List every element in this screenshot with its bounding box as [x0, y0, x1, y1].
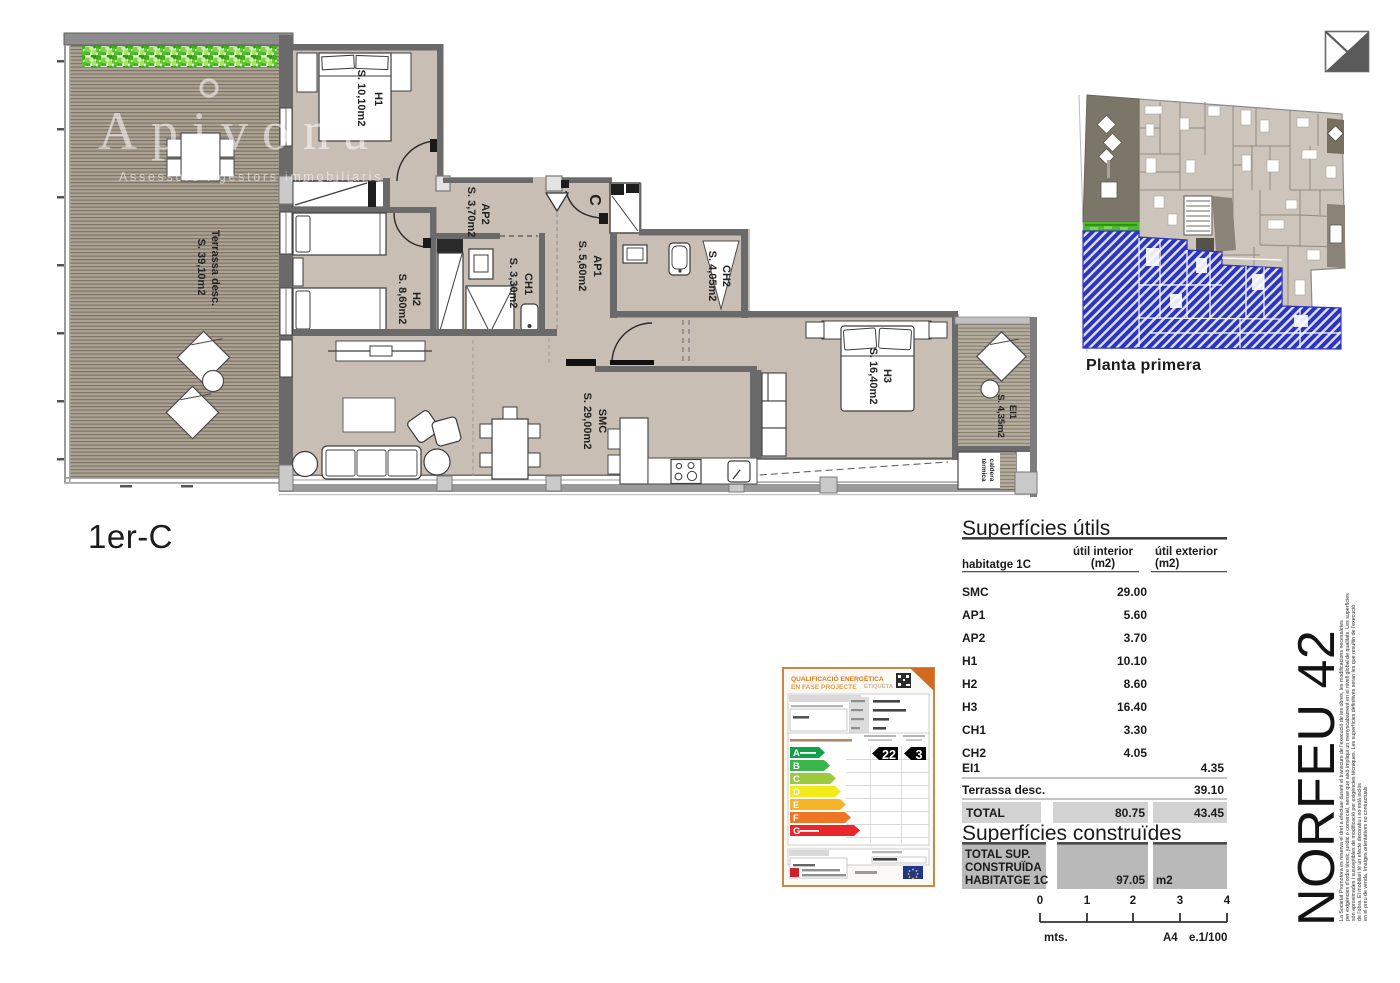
- svg-text:S. 8,60m2: S. 8,60m2: [396, 274, 408, 325]
- svg-text:CH2: CH2: [720, 265, 732, 287]
- svg-text:2: 2: [1130, 895, 1136, 907]
- svg-text:H2: H2: [410, 292, 422, 306]
- svg-text:39.10: 39.10: [1194, 783, 1224, 797]
- svg-text:H3: H3: [962, 700, 978, 714]
- svg-text:1er-C: 1er-C: [88, 518, 173, 555]
- svg-text:3: 3: [1177, 895, 1183, 907]
- svg-text:H2: H2: [962, 677, 978, 691]
- svg-text:mts.: mts.: [1044, 932, 1068, 944]
- svg-text:TOTAL: TOTAL: [966, 806, 1005, 820]
- svg-text:16.40: 16.40: [1117, 700, 1147, 714]
- svg-text:1: 1: [1084, 895, 1091, 907]
- svg-text:Superfícies construïdes: Superfícies construïdes: [962, 822, 1181, 845]
- svg-text:SMC: SMC: [596, 409, 608, 434]
- svg-text:4.05: 4.05: [1124, 746, 1148, 760]
- svg-text:S. 29,00m2: S. 29,00m2: [581, 393, 593, 450]
- svg-text:ETIQUETA: ETIQUETA: [864, 684, 894, 690]
- svg-text:Assessors i gestors immobiliar: Assessors i gestors immobiliaris: [119, 170, 383, 184]
- svg-text:97.05: 97.05: [1116, 875, 1145, 887]
- svg-text:CH1: CH1: [522, 273, 534, 295]
- svg-text:B: B: [793, 761, 800, 772]
- svg-text:TOTAL SUP.: TOTAL SUP.: [965, 849, 1031, 861]
- svg-text:QUALIFICACIÓ ENERGÈTICA: QUALIFICACIÓ ENERGÈTICA: [791, 674, 884, 683]
- svg-text:H1: H1: [962, 654, 978, 668]
- svg-text:CH2: CH2: [962, 746, 986, 760]
- svg-text:S. 39,10m2: S. 39,10m2: [195, 239, 207, 296]
- svg-text:Terrassa desc.: Terrassa desc.: [209, 230, 221, 306]
- svg-text:SMC: SMC: [962, 585, 989, 599]
- svg-text:C: C: [793, 774, 800, 785]
- svg-text:(m2): (m2): [1091, 558, 1115, 570]
- svg-text:habitatge 1C: habitatge 1C: [962, 559, 1031, 571]
- svg-text:HABITATGE 1C: HABITATGE 1C: [965, 875, 1048, 887]
- svg-text:S. 3,70m2: S. 3,70m2: [465, 187, 477, 238]
- svg-text:22: 22: [882, 748, 896, 762]
- svg-text:AP1: AP1: [591, 255, 603, 276]
- svg-text:D: D: [793, 787, 800, 798]
- svg-text:S. 5,60m2: S. 5,60m2: [576, 241, 588, 292]
- svg-text:e.1/100: e.1/100: [1189, 932, 1227, 944]
- svg-text:Apivona: Apivona: [98, 101, 382, 161]
- svg-text:43.45: 43.45: [1194, 806, 1224, 820]
- svg-text:EN FASE PROJECTE: EN FASE PROJECTE: [791, 684, 857, 691]
- svg-text:Superfícies útils: Superfícies útils: [962, 517, 1110, 540]
- svg-text:útil exterior: útil exterior: [1155, 546, 1218, 558]
- svg-text:AP2: AP2: [479, 203, 491, 224]
- svg-text:tèrmica: tèrmica: [980, 458, 987, 482]
- svg-text:NORFEU 42: NORFEU 42: [1288, 630, 1346, 926]
- svg-text:G: G: [793, 826, 800, 837]
- svg-text:F: F: [793, 813, 799, 824]
- svg-text:útil interior: útil interior: [1073, 546, 1134, 558]
- svg-text:CONSTRUÏDA: CONSTRUÏDA: [965, 861, 1042, 874]
- svg-text:10.10: 10.10: [1117, 654, 1147, 668]
- svg-text:E: E: [793, 800, 799, 811]
- svg-text:4.35: 4.35: [1201, 761, 1225, 775]
- svg-text:80.75: 80.75: [1115, 806, 1145, 820]
- svg-text:0: 0: [1037, 895, 1043, 907]
- svg-text:EI1: EI1: [1007, 405, 1018, 420]
- svg-text:H1: H1: [372, 92, 384, 106]
- svg-text:AP2: AP2: [962, 631, 986, 645]
- svg-text:4: 4: [1224, 895, 1231, 907]
- svg-text:AP1: AP1: [962, 608, 986, 622]
- svg-text:C: C: [586, 194, 603, 206]
- svg-text:caldera: caldera: [988, 459, 995, 482]
- svg-text:3.70: 3.70: [1124, 631, 1148, 645]
- svg-text:en el preu de venda. Imatges o: en el preu de venda. Imatges orientative…: [1363, 786, 1369, 921]
- svg-text:5.60: 5.60: [1124, 608, 1148, 622]
- svg-text:H3: H3: [881, 369, 893, 383]
- svg-text:EI1: EI1: [962, 761, 980, 775]
- svg-text:3.30: 3.30: [1124, 723, 1148, 737]
- svg-text:S. 4,05m2: S. 4,05m2: [706, 251, 718, 302]
- svg-text:A4: A4: [1163, 932, 1178, 944]
- svg-text:m2: m2: [1156, 875, 1173, 887]
- svg-text:S. 10,10m2: S. 10,10m2: [355, 70, 367, 127]
- svg-text:8.60: 8.60: [1124, 677, 1148, 691]
- svg-text:29.00: 29.00: [1117, 585, 1147, 599]
- svg-text:S. 16,40m2: S. 16,40m2: [867, 348, 879, 405]
- svg-text:(m2): (m2): [1155, 558, 1179, 570]
- svg-text:A: A: [793, 748, 800, 759]
- svg-text:S. 4,35m2: S. 4,35m2: [995, 394, 1006, 438]
- svg-text:Terrassa desc.: Terrassa desc.: [962, 783, 1045, 797]
- svg-text:3: 3: [916, 748, 923, 762]
- svg-text:Planta primera: Planta primera: [1086, 357, 1201, 374]
- svg-text:S. 3,30m2: S. 3,30m2: [507, 258, 519, 309]
- svg-text:CH1: CH1: [962, 723, 986, 737]
